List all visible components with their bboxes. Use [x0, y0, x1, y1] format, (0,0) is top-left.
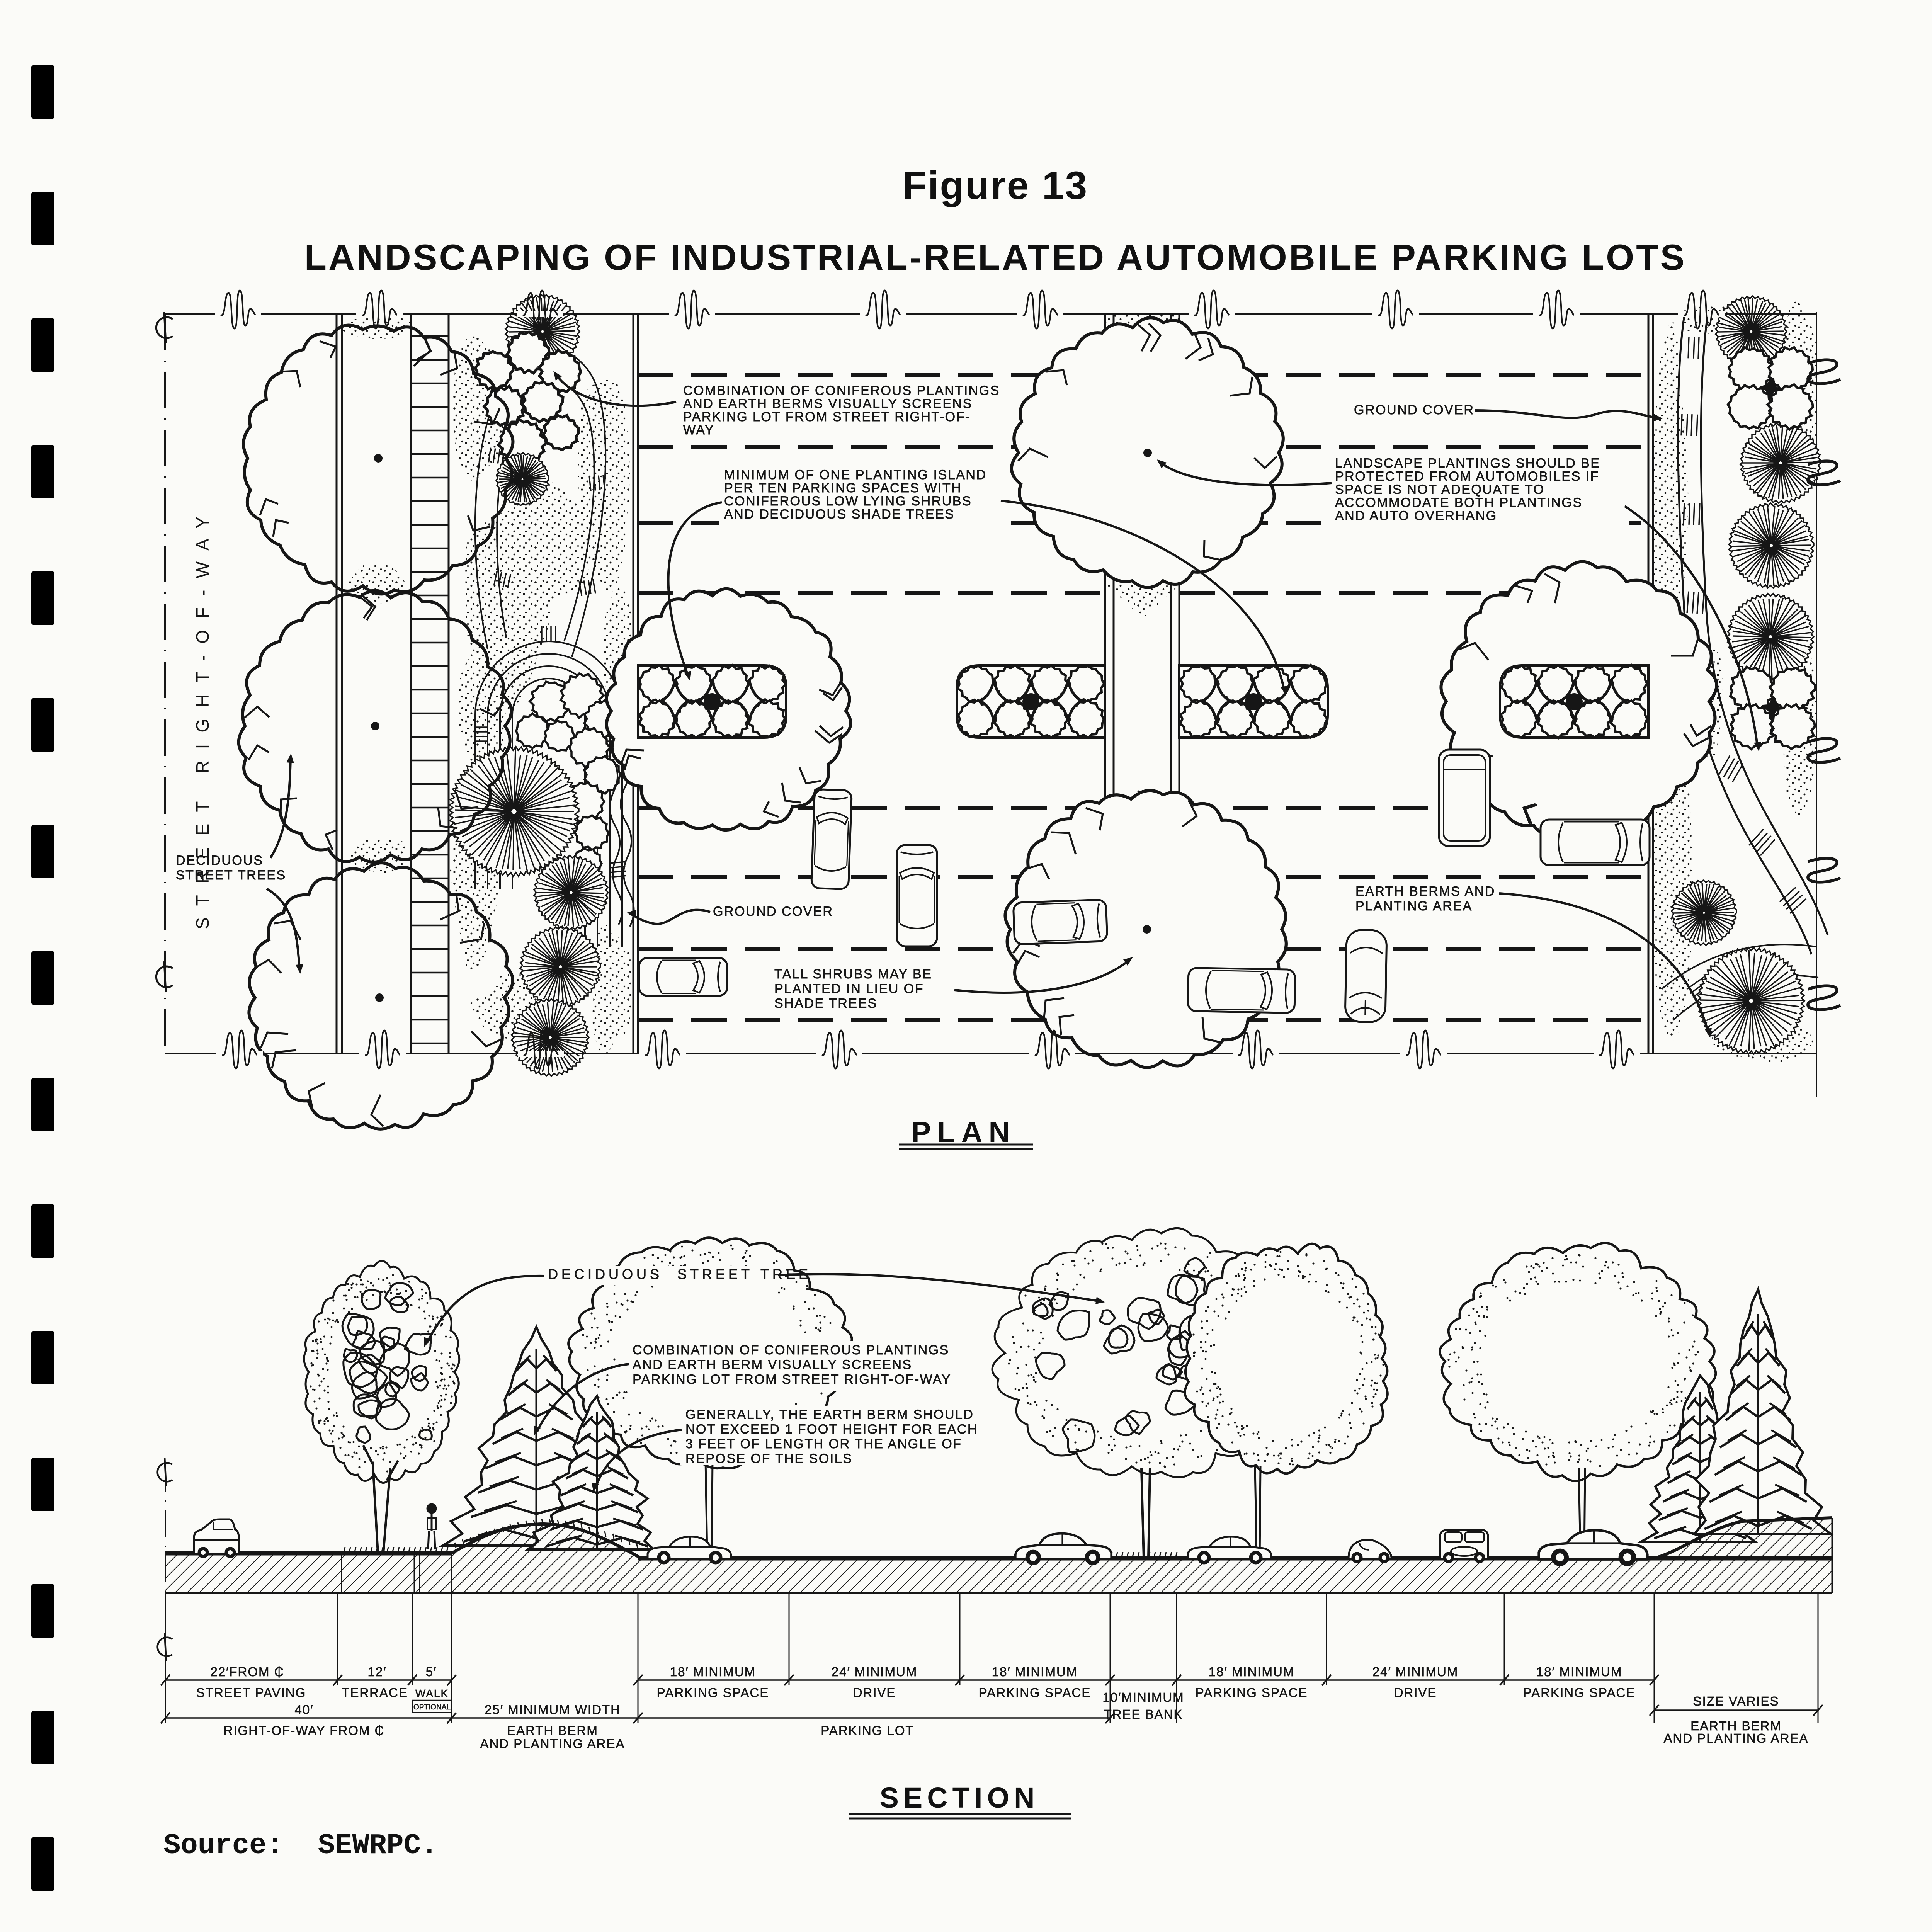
svg-text:DRIVE: DRIVE — [1394, 1685, 1437, 1700]
svg-text:EARTH BERMS AND: EARTH BERMS AND — [1355, 884, 1495, 899]
svg-text:PARKING LOT FROM STREET RIGHT-: PARKING LOT FROM STREET RIGHT-OF-WAY — [633, 1372, 951, 1387]
svg-text:22′FROM ₵: 22′FROM ₵ — [210, 1665, 284, 1679]
svg-text:LANDSCAPING OF INDUSTRIAL-RELA: LANDSCAPING OF INDUSTRIAL-RELATED AUTOMO… — [304, 237, 1687, 277]
svg-text:AND EARTH BERM VISUALLY SCREEN: AND EARTH BERM VISUALLY SCREENS — [633, 1357, 912, 1372]
svg-text:24′ MINIMUM: 24′ MINIMUM — [832, 1665, 918, 1679]
svg-text:18′ MINIMUM: 18′ MINIMUM — [992, 1665, 1078, 1679]
svg-text:AND AUTO OVERHANG: AND AUTO OVERHANG — [1335, 509, 1497, 523]
svg-text:10′MINIMUM: 10′MINIMUM — [1102, 1690, 1184, 1704]
svg-text:AND EARTH BERMS VISUALLY SCREE: AND EARTH BERMS VISUALLY SCREENS — [683, 396, 973, 411]
svg-text:DRIVE: DRIVE — [853, 1685, 896, 1700]
svg-text:PLANTING AREA: PLANTING AREA — [1355, 899, 1473, 913]
svg-text:REPOSE OF THE SOILS: REPOSE OF THE SOILS — [685, 1451, 852, 1466]
svg-text:25′ MINIMUM WIDTH: 25′ MINIMUM WIDTH — [485, 1702, 621, 1717]
svg-text:3 FEET OF LENGTH OR THE ANGLE: 3 FEET OF LENGTH OR THE ANGLE OF — [685, 1437, 962, 1451]
svg-text:NOT EXCEED 1 FOOT HEIGHT FOR E: NOT EXCEED 1 FOOT HEIGHT FOR EACH — [685, 1422, 978, 1437]
svg-text:SHADE TREES: SHADE TREES — [774, 996, 878, 1011]
svg-text:GENERALLY, THE EARTH BERM SHOU: GENERALLY, THE EARTH BERM SHOULD — [685, 1407, 974, 1422]
svg-text:PLANTED IN LIEU OF: PLANTED IN LIEU OF — [774, 981, 924, 996]
svg-text:18′ MINIMUM: 18′ MINIMUM — [1536, 1665, 1622, 1679]
svg-text:12′: 12′ — [368, 1665, 387, 1679]
svg-text:DECIDUOUS: DECIDUOUS — [176, 853, 264, 868]
svg-text:PARKING SPACE: PARKING SPACE — [979, 1685, 1091, 1700]
svg-text:PARKING LOT: PARKING LOT — [821, 1723, 914, 1738]
svg-text:24′ MINIMUM: 24′ MINIMUM — [1372, 1665, 1459, 1679]
svg-text:DECIDUOUS STREET TREE: DECIDUOUS STREET TREE — [548, 1266, 811, 1282]
svg-text:TERRACE: TERRACE — [342, 1685, 408, 1700]
svg-text:PARKING LOT FROM STREET RIGHT-: PARKING LOT FROM STREET RIGHT-OF- — [683, 410, 971, 424]
svg-text:AND DECIDUOUS SHADE TREES: AND DECIDUOUS SHADE TREES — [724, 507, 955, 522]
svg-text:SPACE IS NOT ADEQUATE TO: SPACE IS NOT ADEQUATE TO — [1335, 482, 1544, 497]
svg-text:WALK: WALK — [415, 1687, 449, 1699]
svg-text:18′ MINIMUM: 18′ MINIMUM — [1209, 1665, 1295, 1679]
svg-text:COMBINATION OF CONIFEROUS PLAN: COMBINATION OF CONIFEROUS PLANTINGS — [633, 1343, 949, 1357]
svg-text:TALL SHRUBS MAY BE: TALL SHRUBS MAY BE — [774, 967, 932, 981]
svg-text:SECTION: SECTION — [880, 1782, 1039, 1814]
svg-text:TREE BANK: TREE BANK — [1104, 1707, 1183, 1721]
svg-text:MINIMUM OF ONE PLANTING ISLAND: MINIMUM OF ONE PLANTING ISLAND — [724, 468, 987, 482]
svg-text:PARKING SPACE: PARKING SPACE — [657, 1685, 769, 1700]
svg-text:PER TEN PARKING SPACES WITH: PER TEN PARKING SPACES WITH — [724, 481, 962, 495]
svg-text:PROTECTED FROM AUTOMOBILES IF: PROTECTED FROM AUTOMOBILES IF — [1335, 469, 1599, 484]
svg-text:STREET PAVING: STREET PAVING — [196, 1685, 306, 1700]
svg-text:SIZE VARIES: SIZE VARIES — [1693, 1694, 1779, 1708]
svg-text:GROUND COVER: GROUND COVER — [713, 904, 833, 919]
svg-text:40′: 40′ — [295, 1702, 314, 1717]
svg-text:Figure 13: Figure 13 — [903, 163, 1088, 207]
svg-text:18′ MINIMUM: 18′ MINIMUM — [670, 1665, 756, 1679]
svg-text:WAY: WAY — [683, 423, 714, 437]
svg-text:PARKING SPACE: PARKING SPACE — [1196, 1685, 1308, 1700]
svg-text:RIGHT-OF-WAY FROM ₵: RIGHT-OF-WAY FROM ₵ — [224, 1723, 385, 1738]
svg-text:CONIFEROUS LOW LYING SHRUBS: CONIFEROUS LOW LYING SHRUBS — [724, 494, 972, 509]
svg-text:LANDSCAPE PLANTINGS SHOULD BE: LANDSCAPE PLANTINGS SHOULD BE — [1335, 456, 1600, 471]
svg-text:COMBINATION OF CONIFEROUS PLAN: COMBINATION OF CONIFEROUS PLANTINGS — [683, 383, 1000, 398]
svg-text:5′: 5′ — [426, 1665, 437, 1679]
svg-text:AND PLANTING AREA: AND PLANTING AREA — [480, 1736, 625, 1751]
svg-text:AND PLANTING AREA: AND PLANTING AREA — [1663, 1731, 1808, 1745]
svg-text:OPTIONAL: OPTIONAL — [413, 1703, 451, 1711]
svg-text:GROUND COVER: GROUND COVER — [1354, 403, 1474, 417]
svg-text:PARKING SPACE: PARKING SPACE — [1523, 1685, 1636, 1700]
svg-text:ACCOMMODATE BOTH PLANTINGS: ACCOMMODATE BOTH PLANTINGS — [1335, 495, 1583, 510]
svg-text:STREET RIGHT-OF-WAY: STREET RIGHT-OF-WAY — [192, 505, 213, 929]
svg-text:Source: SEWRPC.: Source: SEWRPC. — [163, 1830, 438, 1862]
svg-text:EARTH BERM: EARTH BERM — [507, 1723, 598, 1738]
